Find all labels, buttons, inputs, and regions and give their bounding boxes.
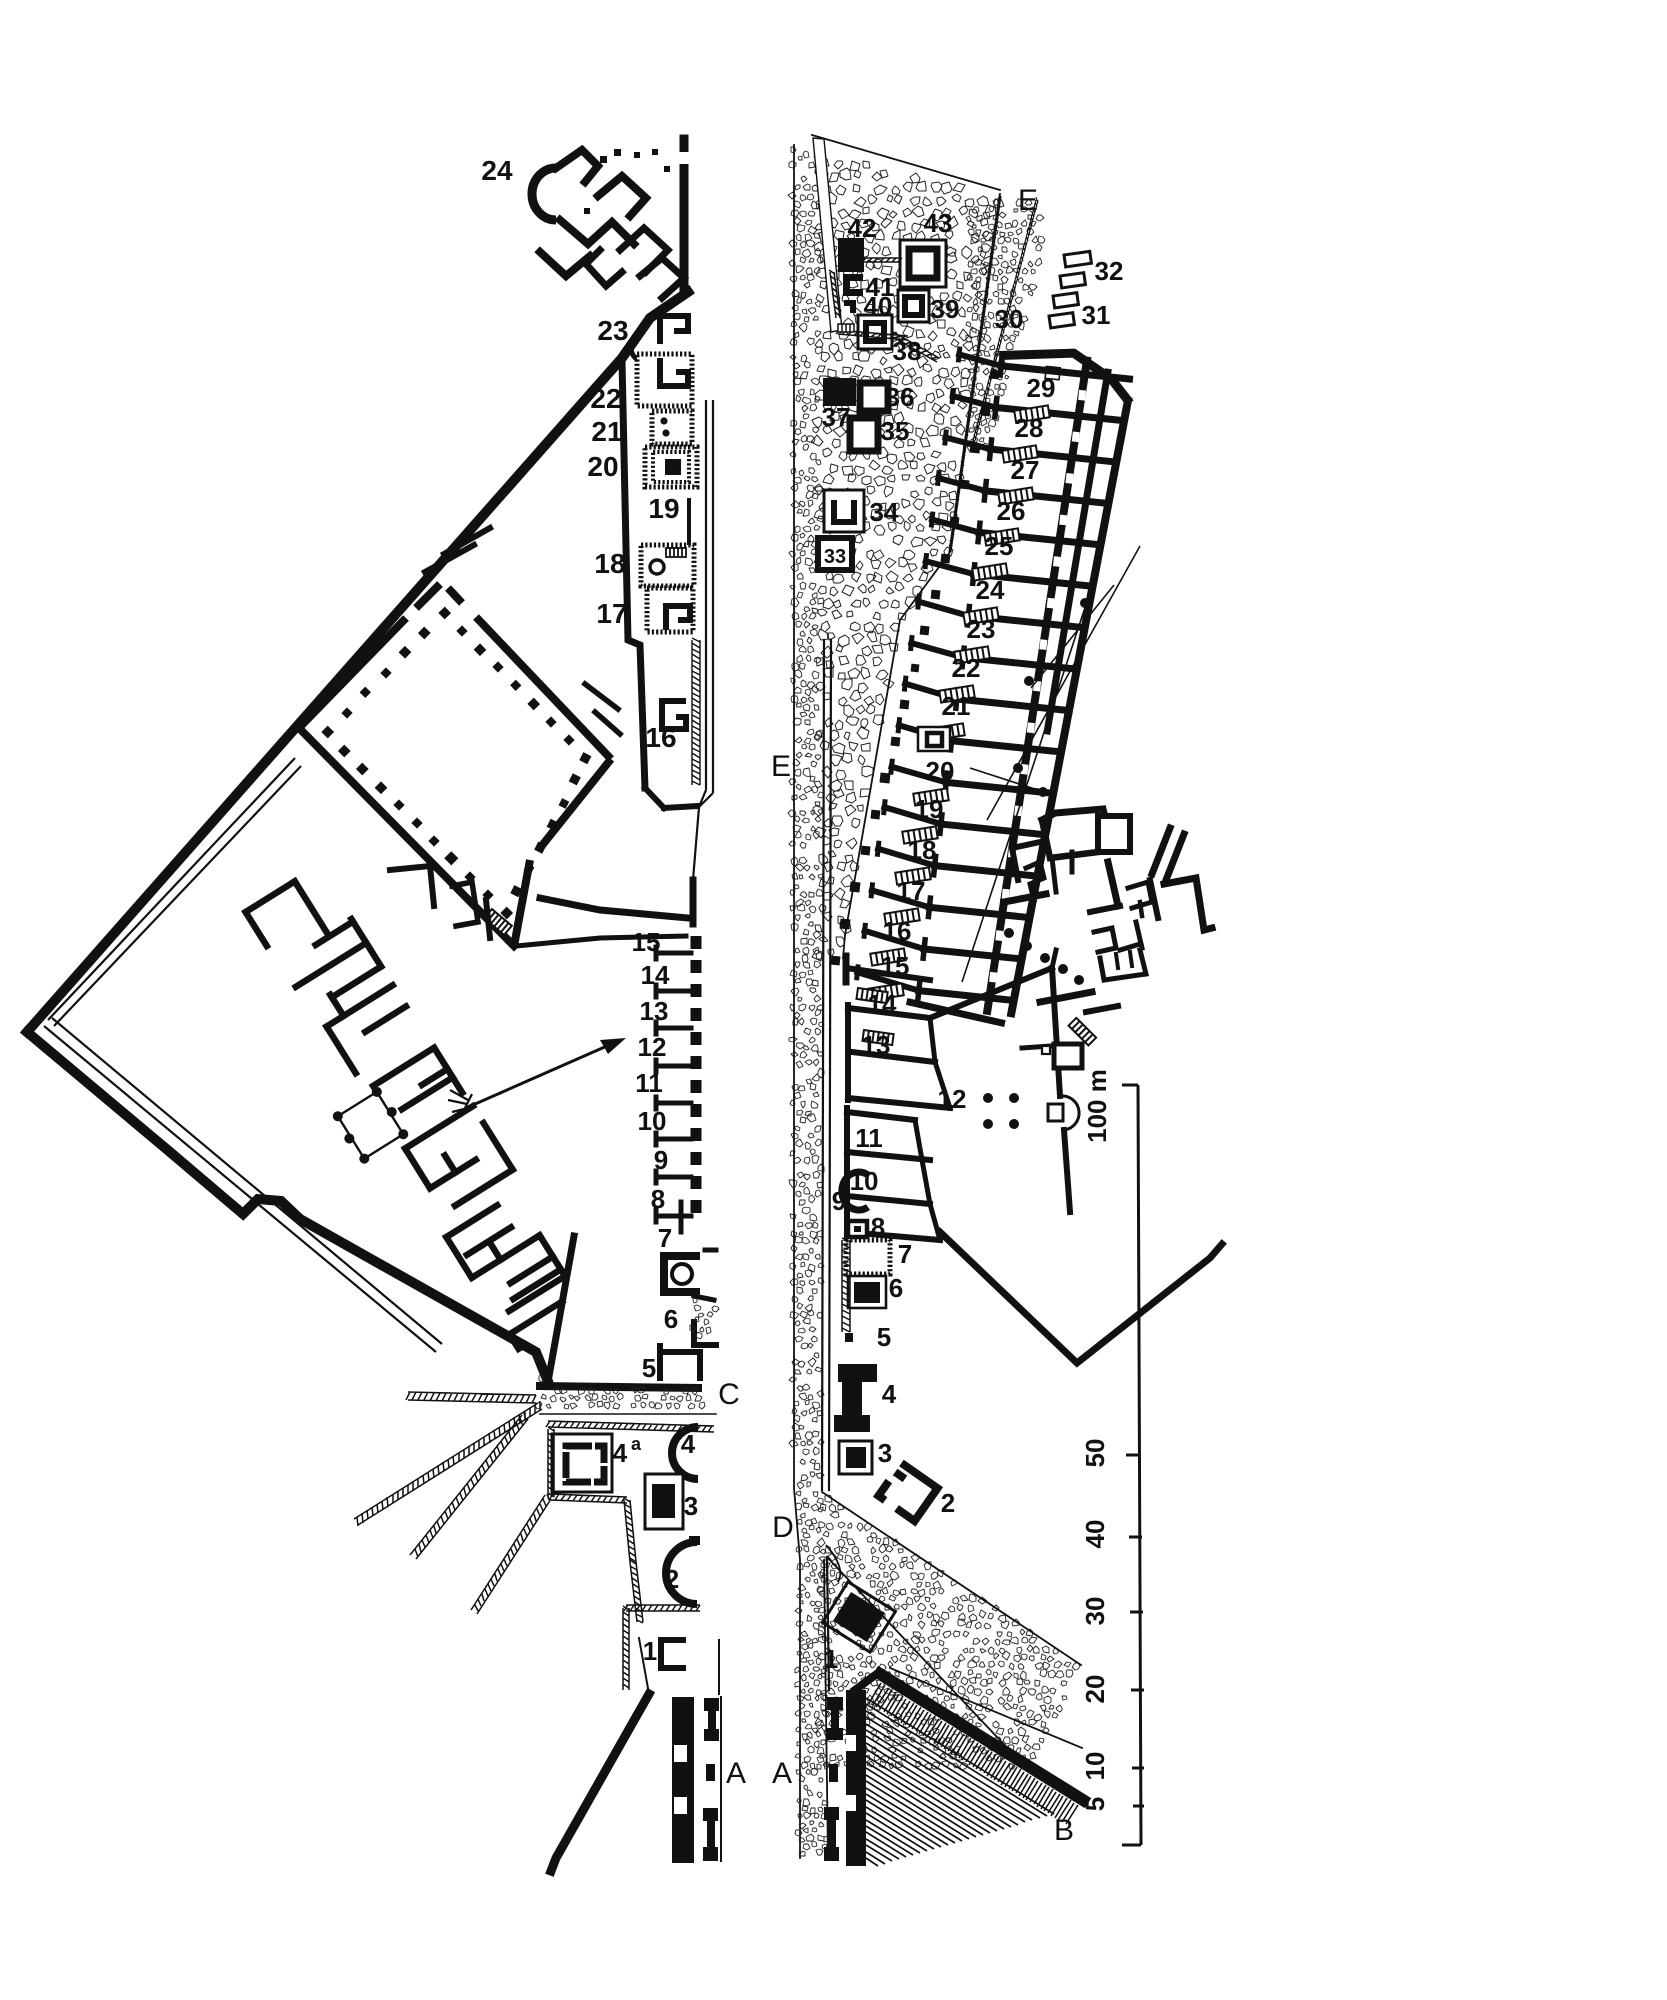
svg-text:22: 22 bbox=[952, 653, 981, 683]
svg-text:10: 10 bbox=[638, 1106, 667, 1136]
svg-text:17: 17 bbox=[596, 598, 627, 629]
svg-text:2: 2 bbox=[665, 1564, 679, 1594]
svg-text:29: 29 bbox=[1027, 373, 1056, 403]
svg-text:a: a bbox=[631, 1434, 642, 1454]
svg-text:6: 6 bbox=[664, 1304, 678, 1334]
svg-text:21: 21 bbox=[942, 691, 971, 721]
svg-text:7: 7 bbox=[898, 1239, 912, 1269]
svg-text:31: 31 bbox=[1082, 300, 1111, 330]
svg-text:2: 2 bbox=[941, 1488, 955, 1518]
svg-text:6: 6 bbox=[889, 1273, 903, 1303]
svg-text:20: 20 bbox=[587, 451, 618, 482]
svg-text:26: 26 bbox=[997, 496, 1026, 526]
svg-text:33: 33 bbox=[824, 546, 846, 568]
svg-text:42: 42 bbox=[848, 213, 877, 243]
svg-text:C: C bbox=[718, 1378, 740, 1411]
svg-text:43: 43 bbox=[924, 208, 953, 238]
svg-text:34: 34 bbox=[870, 497, 899, 527]
svg-text:9: 9 bbox=[832, 1186, 846, 1216]
svg-text:16: 16 bbox=[883, 916, 912, 946]
svg-text:21: 21 bbox=[591, 416, 622, 447]
svg-text:1: 1 bbox=[643, 1636, 657, 1666]
svg-text:10: 10 bbox=[1080, 1752, 1110, 1781]
svg-text:12: 12 bbox=[638, 1032, 667, 1062]
svg-text:36: 36 bbox=[886, 382, 915, 412]
svg-text:24: 24 bbox=[976, 575, 1005, 605]
svg-text:27: 27 bbox=[1011, 455, 1040, 485]
svg-text:3: 3 bbox=[684, 1491, 698, 1521]
svg-text:30: 30 bbox=[995, 304, 1024, 334]
svg-text:22: 22 bbox=[590, 383, 621, 414]
svg-text:15: 15 bbox=[632, 927, 661, 957]
svg-text:20: 20 bbox=[1080, 1675, 1110, 1704]
svg-text:13: 13 bbox=[640, 996, 669, 1026]
svg-text:28: 28 bbox=[1015, 413, 1044, 443]
svg-text:37: 37 bbox=[822, 402, 851, 432]
svg-text:16: 16 bbox=[645, 722, 676, 753]
svg-text:E: E bbox=[771, 750, 791, 783]
svg-text:23: 23 bbox=[967, 614, 996, 644]
svg-text:12: 12 bbox=[938, 1084, 967, 1114]
svg-text:17: 17 bbox=[897, 876, 926, 906]
svg-text:18: 18 bbox=[594, 548, 625, 579]
svg-text:23: 23 bbox=[597, 315, 628, 346]
svg-text:11: 11 bbox=[855, 1123, 883, 1153]
svg-text:7: 7 bbox=[658, 1223, 672, 1253]
svg-text:25: 25 bbox=[985, 531, 1014, 561]
svg-text:3: 3 bbox=[878, 1438, 892, 1468]
svg-text:40: 40 bbox=[1080, 1520, 1110, 1549]
svg-text:19: 19 bbox=[648, 493, 679, 524]
svg-text:24: 24 bbox=[481, 155, 513, 186]
svg-text:5: 5 bbox=[877, 1322, 891, 1352]
svg-text:100 m: 100 m bbox=[1082, 1069, 1112, 1143]
svg-text:4: 4 bbox=[882, 1379, 897, 1409]
svg-text:9: 9 bbox=[654, 1145, 668, 1175]
svg-text:11: 11 bbox=[635, 1068, 663, 1098]
svg-text:1: 1 bbox=[824, 1644, 838, 1674]
svg-text:18: 18 bbox=[908, 835, 937, 865]
svg-text:20: 20 bbox=[926, 756, 955, 786]
svg-text:14: 14 bbox=[641, 960, 670, 990]
svg-text:A: A bbox=[772, 1757, 792, 1790]
svg-text:35: 35 bbox=[881, 416, 910, 446]
svg-text:8: 8 bbox=[651, 1184, 665, 1214]
svg-text:32: 32 bbox=[1095, 256, 1124, 286]
svg-text:14: 14 bbox=[868, 989, 897, 1019]
svg-text:50: 50 bbox=[1080, 1439, 1110, 1468]
svg-text:4: 4 bbox=[613, 1438, 628, 1468]
svg-text:19: 19 bbox=[915, 794, 944, 824]
svg-text:B: B bbox=[1054, 1814, 1074, 1847]
svg-text:30: 30 bbox=[1080, 1597, 1110, 1626]
svg-text:D: D bbox=[772, 1511, 794, 1544]
svg-text:39: 39 bbox=[931, 294, 960, 324]
svg-text:5: 5 bbox=[642, 1353, 656, 1383]
svg-text:13: 13 bbox=[862, 1030, 891, 1060]
svg-text:A: A bbox=[726, 1757, 746, 1790]
svg-text:E: E bbox=[1018, 184, 1038, 217]
svg-text:4: 4 bbox=[681, 1429, 696, 1459]
